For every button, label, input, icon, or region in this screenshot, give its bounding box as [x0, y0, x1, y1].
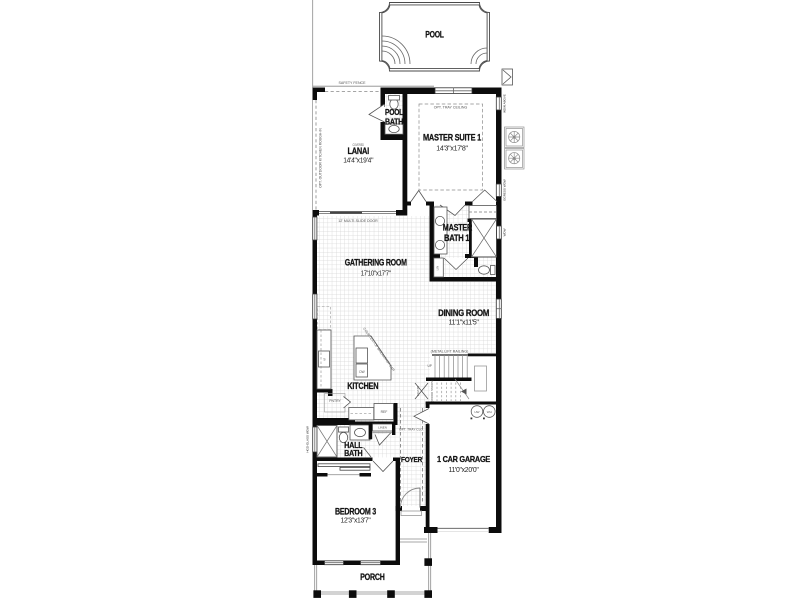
- svg-text:MASTER SUITE 1: MASTER SUITE 1: [423, 132, 481, 143]
- svg-text:BATH: BATH: [344, 448, 363, 458]
- svg-text:FOYER: FOYER: [401, 455, 423, 464]
- svg-text:OPT. OUTDOOR KITCHEN ROUGH-IN: OPT. OUTDOOR KITCHEN ROUGH-IN: [319, 128, 323, 188]
- svg-text:DW: DW: [359, 370, 364, 374]
- svg-text:GATHERING ROOM: GATHERING ROOM: [345, 257, 407, 268]
- svg-text:(METAL LIFT RAILING): (METAL LIFT RAILING): [431, 349, 469, 353]
- svg-text:LIN: LIN: [436, 266, 440, 271]
- svg-text:REF: REF: [381, 410, 388, 414]
- svg-text:11'0"x20'0": 11'0"x20'0": [449, 465, 480, 474]
- svg-text:DINING ROOM: DINING ROOM: [438, 307, 489, 318]
- svg-text:KITCHEN: KITCHEN: [347, 380, 378, 391]
- svg-text:(WOOD STAIRS): (WOOD STAIRS): [430, 380, 434, 402]
- svg-text:HGD-GLASS WDW: HGD-GLASS WDW: [306, 426, 310, 453]
- svg-text:11'1"x11'5": 11'1"x11'5": [449, 317, 480, 326]
- svg-text:BATH: BATH: [385, 117, 403, 127]
- svg-text:LINEN: LINEN: [378, 425, 387, 429]
- svg-text:SAFETY FENCE: SAFETY FENCE: [338, 81, 366, 85]
- svg-text:WH: WH: [487, 410, 492, 414]
- svg-text:WDW: WDW: [503, 228, 507, 236]
- svg-text:COATS: COATS: [416, 386, 420, 396]
- svg-text:14'3"x17'8": 14'3"x17'8": [436, 144, 468, 153]
- svg-text:OPT. TRAY CLG.: OPT. TRAY CLG.: [399, 428, 424, 432]
- svg-text:17'10"x17'7": 17'10"x17'7": [361, 269, 392, 278]
- svg-text:1 CAR GARAGE: 1 CAR GARAGE: [437, 454, 491, 464]
- svg-text:14'4"x19'4": 14'4"x19'4": [343, 156, 374, 165]
- svg-text:PORCH: PORCH: [360, 571, 385, 582]
- svg-text:MASTER: MASTER: [443, 223, 473, 233]
- svg-text:PNTRY: PNTRY: [329, 399, 341, 403]
- svg-text:S: S: [323, 358, 325, 362]
- svg-text:WDW ABOVE: WDW ABOVE: [503, 94, 507, 113]
- svg-text:HW: HW: [475, 410, 480, 414]
- svg-text:POOL: POOL: [425, 29, 444, 40]
- svg-text:EGRESS WDW: EGRESS WDW: [503, 179, 507, 200]
- svg-text:UP: UP: [428, 364, 432, 368]
- svg-text:BATH 1: BATH 1: [444, 233, 470, 243]
- svg-text:LANAI: LANAI: [347, 145, 369, 156]
- svg-text:12'3"x13'7": 12'3"x13'7": [341, 515, 372, 524]
- svg-text:OPT. TRAY CEILING: OPT. TRAY CEILING: [434, 106, 468, 110]
- svg-text:12' MULTI-SLIDE DOOR: 12' MULTI-SLIDE DOOR: [338, 219, 378, 223]
